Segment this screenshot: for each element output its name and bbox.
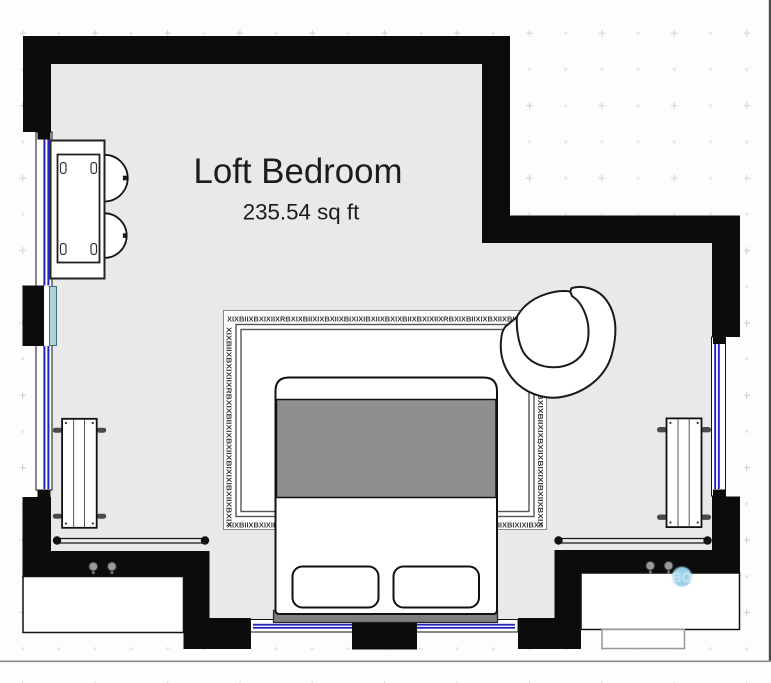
svg-text:XIXBIIXBXIXIIXRBXIXBIIXIXBXIIX: XIXBIIXBXIXIIXRBXIXBIIXIXBXIIXBIXIXIBXII… [227, 317, 543, 324]
svg-text:BO: BO [672, 570, 692, 585]
svg-text:XIXBIIXBXIXIIXRBXIXBIIXIXBXIIX: XIXBIIXBXIXIIXRBXIXBIIXIXBXIIXBIXIXIBXII… [225, 327, 232, 527]
svg-text:Loft Bedroom: Loft Bedroom [194, 152, 403, 191]
svg-text:235.54 sq ft: 235.54 sq ft [243, 200, 360, 225]
